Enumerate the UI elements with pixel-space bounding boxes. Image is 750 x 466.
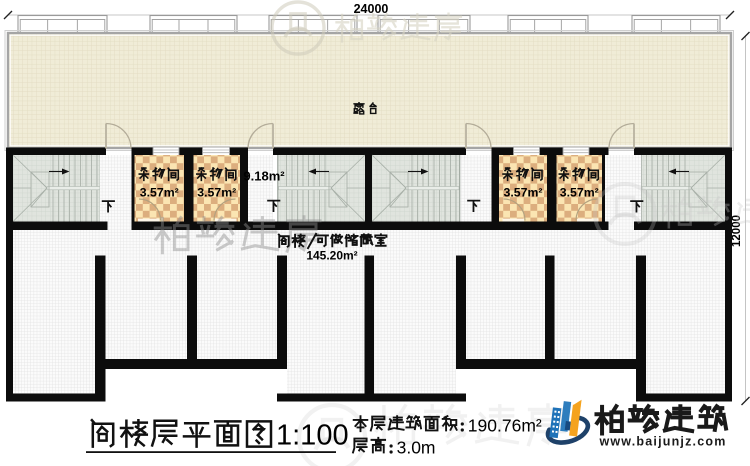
svg-text:24000: 24000 [354,2,389,16]
svg-text:1:100: 1:100 [276,420,349,452]
svg-text:3.57m²: 3.57m² [560,186,599,200]
svg-text:www.baijunjz.com: www.baijunjz.com [598,435,726,449]
svg-text:3.57m²: 3.57m² [197,186,236,200]
svg-text:190.76m²: 190.76m² [468,416,542,436]
svg-text:3.57m²: 3.57m² [140,186,179,200]
svg-text:3.57m²: 3.57m² [504,186,543,200]
svg-text:145.20m²: 145.20m² [306,249,357,263]
svg-text:3.0m: 3.0m [397,438,436,458]
svg-text:9.18m²: 9.18m² [243,169,285,184]
